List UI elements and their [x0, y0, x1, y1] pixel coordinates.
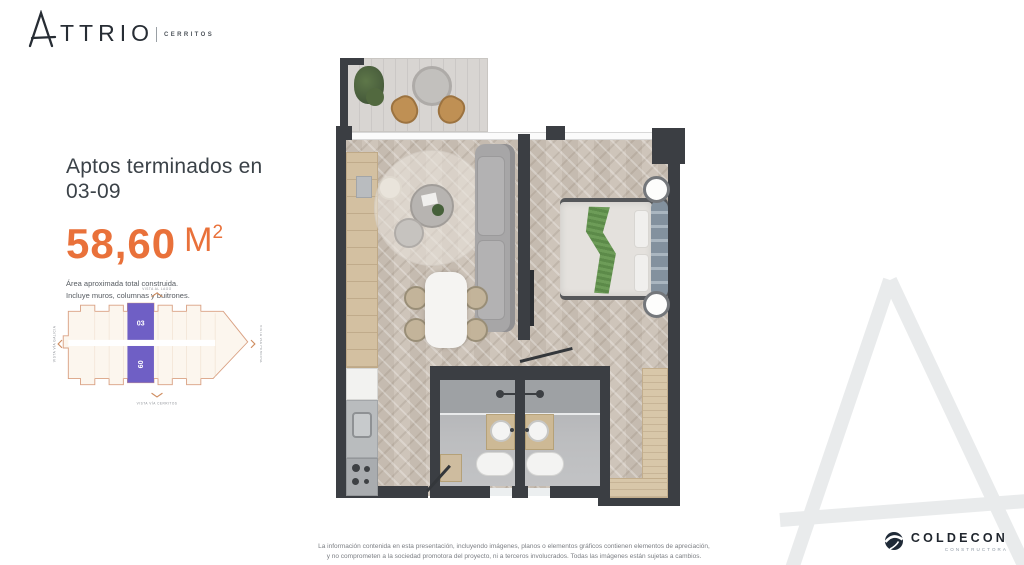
stove-burner: [364, 466, 370, 472]
toilet-2: [526, 452, 564, 476]
wall-segment: [546, 126, 565, 140]
wall-segment: [340, 58, 348, 134]
wall-segment: [340, 58, 364, 65]
view-label-bottom: VISTA VÍA CERRITOS: [137, 402, 178, 406]
dining-chair: [464, 318, 488, 342]
kitchen-sink: [352, 412, 372, 438]
living-window: [352, 132, 546, 140]
stove: [346, 458, 378, 496]
sofa-cushion: [477, 156, 505, 236]
bed-pillow: [634, 254, 649, 292]
faucet-dot: [525, 428, 529, 432]
unit-09-label: 09: [136, 360, 144, 368]
building-locator-plan: 03 09 VISTA AL LAGO VISTA VÍA CERRITOS V…: [52, 284, 262, 410]
area-figure: 58,60 M2: [66, 220, 316, 268]
desk-item: [356, 176, 372, 198]
stove-burner: [364, 479, 369, 484]
presentation-slide: { "header": { "logo_text": "TTRIO", "log…: [0, 0, 1024, 565]
nightstand: [643, 176, 670, 203]
attrio-a-watermark: [740, 248, 1024, 565]
closet: [642, 368, 668, 496]
side-table: [394, 218, 424, 248]
info-panel: Aptos terminados en 03-09 58,60 M2 Área …: [66, 154, 316, 301]
refrigerator: [346, 368, 378, 400]
attrio-a-icon: [26, 10, 58, 48]
closet: [600, 478, 668, 498]
stove-burner: [352, 478, 359, 485]
builder-logo: COLDECON CONSTRUCTORA: [884, 531, 1008, 552]
shower-1: [440, 380, 515, 415]
corridor: [68, 340, 215, 346]
view-label-top: VISTA AL LAGO: [142, 287, 171, 291]
disclaimer-line2: y no comprometen a la sociedad promotora…: [312, 552, 716, 562]
wall-living-bedroom-divider: [518, 134, 530, 340]
toilet-1: [476, 452, 514, 476]
door-threshold: [528, 488, 550, 496]
bathroom-cabinet: [440, 454, 462, 482]
legal-disclaimer: La información contenida en esta present…: [312, 542, 716, 562]
floor-plan: [336, 58, 692, 510]
wall-segment: [430, 486, 490, 498]
brand-logo: TTRIO CERRITOS: [26, 10, 214, 48]
view-label-left: VISTA VÍA GALICIA: [53, 325, 57, 362]
wall-segment: [550, 486, 610, 498]
area-value: 58,60: [66, 220, 176, 268]
dining-table: [425, 272, 467, 348]
builder-name: COLDECON: [911, 531, 1008, 545]
shower-head: [536, 390, 544, 398]
bathroom-middle-wall: [515, 366, 525, 498]
builder-subtitle: CONSTRUCTORA: [945, 547, 1008, 552]
bedroom-window: [565, 132, 652, 140]
shower-head: [496, 390, 504, 398]
tv-panel: [530, 270, 534, 326]
unit-03-label: 03: [137, 320, 145, 328]
panel-title-line1: Aptos terminados en: [66, 154, 316, 179]
bed-pillow: [634, 210, 649, 248]
bathroom-sink-2: [527, 420, 549, 442]
bathroom-sink-1: [490, 420, 512, 442]
brand-name: TTRIO: [60, 20, 154, 47]
door-threshold: [490, 488, 512, 496]
dining-chair: [464, 286, 488, 310]
wall-segment: [668, 142, 680, 496]
wall-segment: [336, 134, 346, 496]
view-label-right: VISTA VÍA PEREIRA: [259, 325, 262, 363]
area-unit: M2: [184, 221, 223, 260]
table-plant: [432, 204, 444, 216]
faucet-dot: [510, 428, 514, 432]
disclaimer-line1: La información contenida en esta present…: [312, 542, 716, 552]
panel-title-line2: 03-09: [66, 179, 316, 204]
wall-segment: [512, 486, 528, 498]
shower-2: [525, 380, 600, 415]
bed-headboard: [651, 200, 668, 298]
balcony-plant: [366, 88, 384, 106]
nightstand: [643, 291, 670, 318]
brand-divider: [156, 27, 157, 42]
stove-burner: [352, 464, 360, 472]
bathroom-right-wall: [600, 366, 610, 498]
brand-location: CERRITOS: [164, 32, 214, 38]
coldecon-icon: [884, 531, 904, 551]
